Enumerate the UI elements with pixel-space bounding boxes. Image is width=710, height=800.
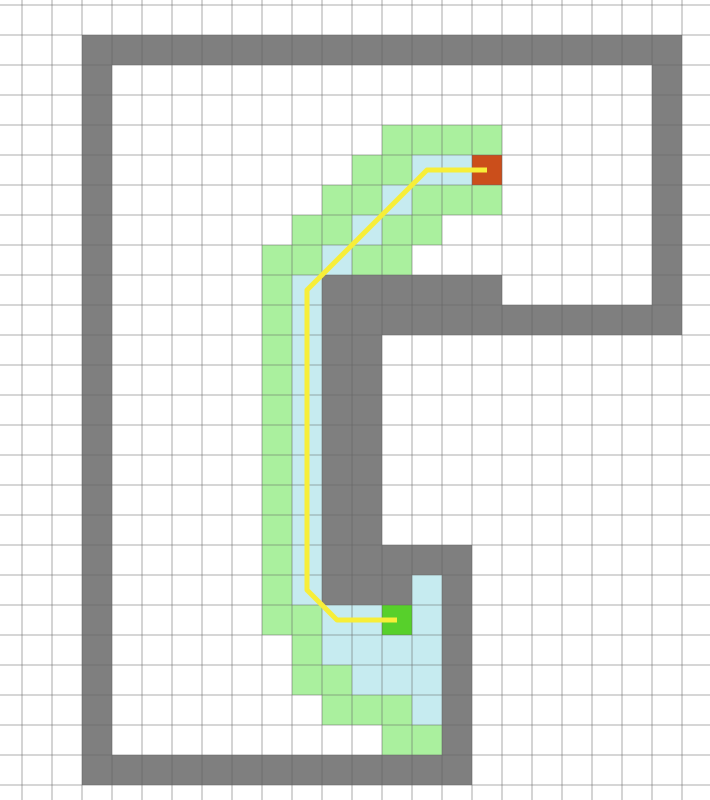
explored-cell[interactable] xyxy=(352,215,382,245)
wall-cell[interactable] xyxy=(442,755,472,785)
frontier-cell[interactable] xyxy=(262,395,292,425)
wall-cell[interactable] xyxy=(652,125,682,155)
wall-cell[interactable] xyxy=(262,755,292,785)
frontier-cell[interactable] xyxy=(382,155,412,185)
frontier-cell[interactable] xyxy=(262,425,292,455)
frontier-cell[interactable] xyxy=(262,455,292,485)
explored-cell[interactable] xyxy=(382,185,412,215)
wall-cell[interactable] xyxy=(532,35,562,65)
wall-cell[interactable] xyxy=(502,305,532,335)
wall-cell[interactable] xyxy=(322,35,352,65)
frontier-cell[interactable] xyxy=(382,215,412,245)
wall-cell[interactable] xyxy=(82,35,112,65)
wall-cell[interactable] xyxy=(112,35,142,65)
wall-cell[interactable] xyxy=(562,305,592,335)
wall-cell[interactable] xyxy=(322,485,352,515)
wall-cell[interactable] xyxy=(442,305,472,335)
frontier-cell[interactable] xyxy=(412,125,442,155)
frontier-cell[interactable] xyxy=(262,485,292,515)
wall-cell[interactable] xyxy=(82,245,112,275)
wall-cell[interactable] xyxy=(652,185,682,215)
explored-cell[interactable] xyxy=(292,545,322,575)
wall-cell[interactable] xyxy=(112,755,142,785)
wall-cell[interactable] xyxy=(82,725,112,755)
frontier-cell[interactable] xyxy=(292,665,322,695)
wall-cell[interactable] xyxy=(652,215,682,245)
wall-cell[interactable] xyxy=(322,755,352,785)
explored-cell[interactable] xyxy=(412,665,442,695)
wall-cell[interactable] xyxy=(352,575,382,605)
wall-cell[interactable] xyxy=(82,215,112,245)
wall-cell[interactable] xyxy=(412,275,442,305)
wall-cell[interactable] xyxy=(382,575,412,605)
explored-cell[interactable] xyxy=(412,155,442,185)
wall-cell[interactable] xyxy=(82,605,112,635)
wall-cell[interactable] xyxy=(82,575,112,605)
wall-cell[interactable] xyxy=(442,695,472,725)
wall-cell[interactable] xyxy=(532,305,562,335)
wall-cell[interactable] xyxy=(202,755,232,785)
explored-cell[interactable] xyxy=(322,635,352,665)
wall-cell[interactable] xyxy=(352,305,382,335)
wall-cell[interactable] xyxy=(82,665,112,695)
wall-cell[interactable] xyxy=(82,485,112,515)
frontier-cell[interactable] xyxy=(472,185,502,215)
wall-cell[interactable] xyxy=(352,515,382,545)
frontier-cell[interactable] xyxy=(262,605,292,635)
wall-cell[interactable] xyxy=(322,575,352,605)
explored-cell[interactable] xyxy=(292,335,322,365)
frontier-cell[interactable] xyxy=(382,245,412,275)
frontier-cell[interactable] xyxy=(292,635,322,665)
wall-cell[interactable] xyxy=(442,575,472,605)
frontier-cell[interactable] xyxy=(292,215,322,245)
wall-cell[interactable] xyxy=(202,35,232,65)
wall-cell[interactable] xyxy=(82,515,112,545)
wall-cell[interactable] xyxy=(652,35,682,65)
frontier-cell[interactable] xyxy=(262,545,292,575)
wall-cell[interactable] xyxy=(442,665,472,695)
wall-cell[interactable] xyxy=(592,305,622,335)
explored-cell[interactable] xyxy=(322,605,352,635)
wall-cell[interactable] xyxy=(652,245,682,275)
wall-cell[interactable] xyxy=(652,95,682,125)
wall-cell[interactable] xyxy=(442,275,472,305)
wall-cell[interactable] xyxy=(82,545,112,575)
frontier-cell[interactable] xyxy=(412,215,442,245)
wall-cell[interactable] xyxy=(412,545,442,575)
wall-cell[interactable] xyxy=(82,95,112,125)
explored-cell[interactable] xyxy=(382,665,412,695)
wall-cell[interactable] xyxy=(82,395,112,425)
wall-cell[interactable] xyxy=(352,485,382,515)
wall-cell[interactable] xyxy=(232,755,262,785)
wall-cell[interactable] xyxy=(82,755,112,785)
goal-cell[interactable] xyxy=(472,155,502,185)
explored-cell[interactable] xyxy=(292,485,322,515)
frontier-cell[interactable] xyxy=(352,155,382,185)
wall-cell[interactable] xyxy=(472,275,502,305)
wall-cell[interactable] xyxy=(82,185,112,215)
frontier-cell[interactable] xyxy=(322,215,352,245)
explored-cell[interactable] xyxy=(352,605,382,635)
frontier-cell[interactable] xyxy=(292,605,322,635)
frontier-cell[interactable] xyxy=(442,125,472,155)
explored-cell[interactable] xyxy=(412,605,442,635)
wall-cell[interactable] xyxy=(442,545,472,575)
wall-cell[interactable] xyxy=(652,65,682,95)
frontier-cell[interactable] xyxy=(322,695,352,725)
frontier-cell[interactable] xyxy=(322,185,352,215)
start-cell[interactable] xyxy=(382,605,412,635)
wall-cell[interactable] xyxy=(142,35,172,65)
wall-cell[interactable] xyxy=(322,335,352,365)
wall-cell[interactable] xyxy=(562,35,592,65)
cells-layer xyxy=(0,0,710,800)
wall-cell[interactable] xyxy=(652,305,682,335)
explored-cell[interactable] xyxy=(412,575,442,605)
frontier-cell[interactable] xyxy=(382,125,412,155)
wall-cell[interactable] xyxy=(382,545,412,575)
wall-cell[interactable] xyxy=(292,35,322,65)
wall-cell[interactable] xyxy=(322,365,352,395)
wall-cell[interactable] xyxy=(322,545,352,575)
wall-cell[interactable] xyxy=(442,725,472,755)
frontier-cell[interactable] xyxy=(262,575,292,605)
explored-cell[interactable] xyxy=(292,305,322,335)
wall-cell[interactable] xyxy=(352,545,382,575)
frontier-cell[interactable] xyxy=(412,185,442,215)
explored-cell[interactable] xyxy=(352,635,382,665)
wall-cell[interactable] xyxy=(322,515,352,545)
wall-cell[interactable] xyxy=(412,755,442,785)
explored-cell[interactable] xyxy=(292,455,322,485)
frontier-cell[interactable] xyxy=(352,695,382,725)
wall-cell[interactable] xyxy=(322,305,352,335)
frontier-cell[interactable] xyxy=(292,245,322,275)
wall-cell[interactable] xyxy=(82,455,112,485)
wall-cell[interactable] xyxy=(502,35,532,65)
explored-cell[interactable] xyxy=(442,155,472,185)
wall-cell[interactable] xyxy=(82,335,112,365)
explored-cell[interactable] xyxy=(292,575,322,605)
wall-cell[interactable] xyxy=(442,635,472,665)
wall-cell[interactable] xyxy=(382,35,412,65)
wall-cell[interactable] xyxy=(142,755,172,785)
frontier-cell[interactable] xyxy=(262,335,292,365)
wall-cell[interactable] xyxy=(262,35,292,65)
wall-cell[interactable] xyxy=(442,605,472,635)
frontier-cell[interactable] xyxy=(322,665,352,695)
wall-cell[interactable] xyxy=(82,125,112,155)
wall-cell[interactable] xyxy=(82,65,112,95)
frontier-cell[interactable] xyxy=(262,515,292,545)
wall-cell[interactable] xyxy=(292,755,322,785)
explored-cell[interactable] xyxy=(292,425,322,455)
wall-cell[interactable] xyxy=(472,305,502,335)
frontier-cell[interactable] xyxy=(352,185,382,215)
explored-cell[interactable] xyxy=(292,515,322,545)
explored-cell[interactable] xyxy=(352,665,382,695)
frontier-cell[interactable] xyxy=(262,275,292,305)
explored-cell[interactable] xyxy=(292,275,322,305)
wall-cell[interactable] xyxy=(82,695,112,725)
wall-cell[interactable] xyxy=(382,755,412,785)
wall-cell[interactable] xyxy=(352,395,382,425)
wall-cell[interactable] xyxy=(322,455,352,485)
frontier-cell[interactable] xyxy=(382,695,412,725)
frontier-cell[interactable] xyxy=(442,185,472,215)
wall-cell[interactable] xyxy=(82,155,112,185)
wall-cell[interactable] xyxy=(352,455,382,485)
wall-cell[interactable] xyxy=(82,635,112,665)
frontier-cell[interactable] xyxy=(262,245,292,275)
wall-cell[interactable] xyxy=(352,335,382,365)
wall-cell[interactable] xyxy=(382,275,412,305)
wall-cell[interactable] xyxy=(622,305,652,335)
explored-cell[interactable] xyxy=(292,365,322,395)
wall-cell[interactable] xyxy=(412,305,442,335)
frontier-cell[interactable] xyxy=(262,365,292,395)
explored-cell[interactable] xyxy=(382,635,412,665)
explored-cell[interactable] xyxy=(322,245,352,275)
wall-cell[interactable] xyxy=(472,35,502,65)
wall-cell[interactable] xyxy=(352,275,382,305)
wall-cell[interactable] xyxy=(352,425,382,455)
wall-cell[interactable] xyxy=(412,35,442,65)
wall-cell[interactable] xyxy=(622,35,652,65)
wall-cell[interactable] xyxy=(442,35,472,65)
frontier-cell[interactable] xyxy=(472,125,502,155)
explored-cell[interactable] xyxy=(292,395,322,425)
wall-cell[interactable] xyxy=(82,275,112,305)
wall-cell[interactable] xyxy=(352,35,382,65)
wall-cell[interactable] xyxy=(232,35,262,65)
pathfinding-grid-canvas[interactable] xyxy=(0,0,710,800)
wall-cell[interactable] xyxy=(322,395,352,425)
wall-cell[interactable] xyxy=(652,275,682,305)
frontier-cell[interactable] xyxy=(262,305,292,335)
wall-cell[interactable] xyxy=(82,365,112,395)
wall-cell[interactable] xyxy=(172,755,202,785)
wall-cell[interactable] xyxy=(82,305,112,335)
frontier-cell[interactable] xyxy=(382,725,412,755)
wall-cell[interactable] xyxy=(382,305,412,335)
wall-cell[interactable] xyxy=(322,425,352,455)
frontier-cell[interactable] xyxy=(412,725,442,755)
explored-cell[interactable] xyxy=(412,635,442,665)
explored-cell[interactable] xyxy=(412,695,442,725)
wall-cell[interactable] xyxy=(82,425,112,455)
wall-cell[interactable] xyxy=(592,35,622,65)
wall-cell[interactable] xyxy=(172,35,202,65)
wall-cell[interactable] xyxy=(652,155,682,185)
wall-cell[interactable] xyxy=(322,275,352,305)
frontier-cell[interactable] xyxy=(352,245,382,275)
wall-cell[interactable] xyxy=(352,365,382,395)
wall-cell[interactable] xyxy=(352,755,382,785)
